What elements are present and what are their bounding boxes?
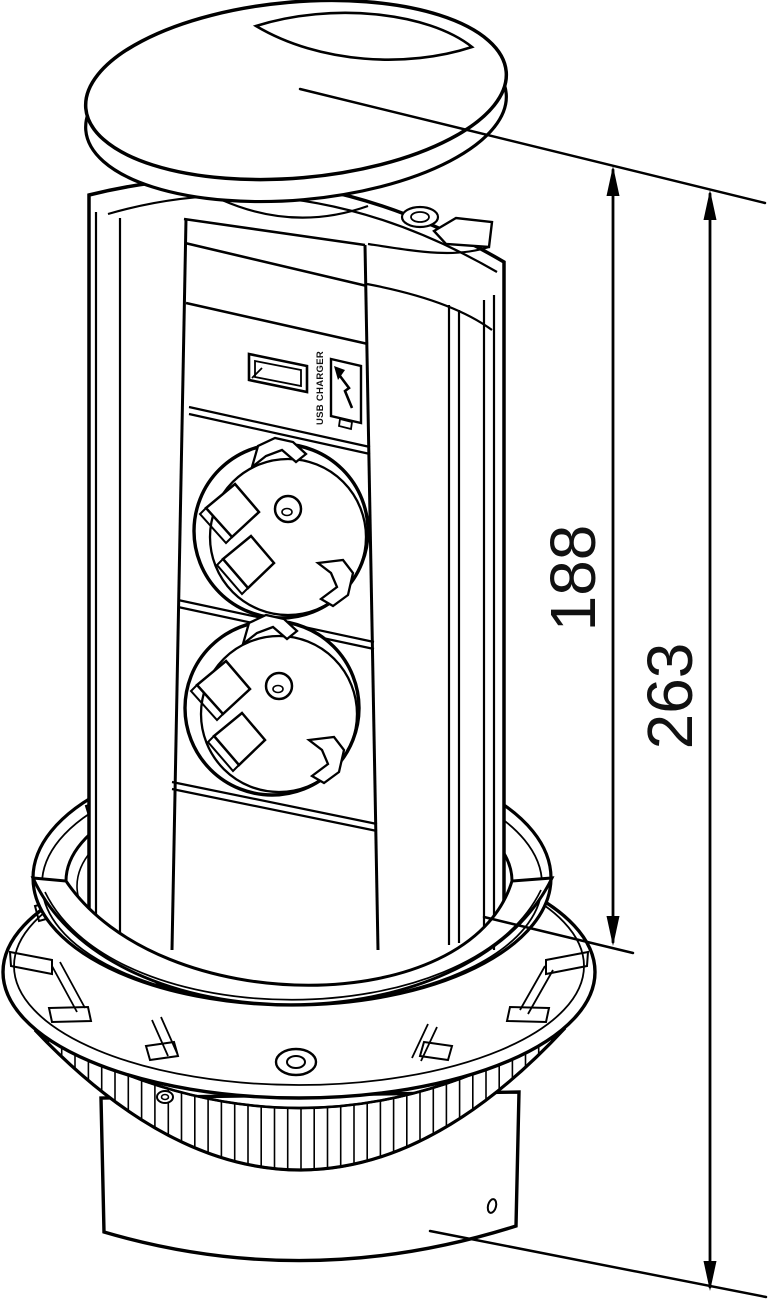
dimension-263-label: 263 — [634, 643, 706, 750]
tower-body: USB CHARGER — [89, 179, 504, 1000]
dimension-263: 263 — [634, 190, 717, 1291]
dimension-188: 188 — [537, 166, 620, 946]
lid — [78, 0, 514, 218]
arrowhead-188-top — [607, 166, 620, 196]
arrowhead-263-top — [704, 190, 717, 220]
usb-charger-text: USB CHARGER — [315, 351, 326, 425]
body-top-screw-icon — [402, 207, 438, 227]
ring-screw-icon — [157, 1091, 173, 1103]
dimension-188-label: 188 — [537, 525, 609, 632]
drawing-canvas: USB CHARGER — [0, 0, 768, 1303]
flange-screw-icon — [276, 1049, 316, 1075]
technical-drawing: USB CHARGER — [0, 0, 768, 1303]
arrowhead-188-bottom — [607, 916, 620, 946]
